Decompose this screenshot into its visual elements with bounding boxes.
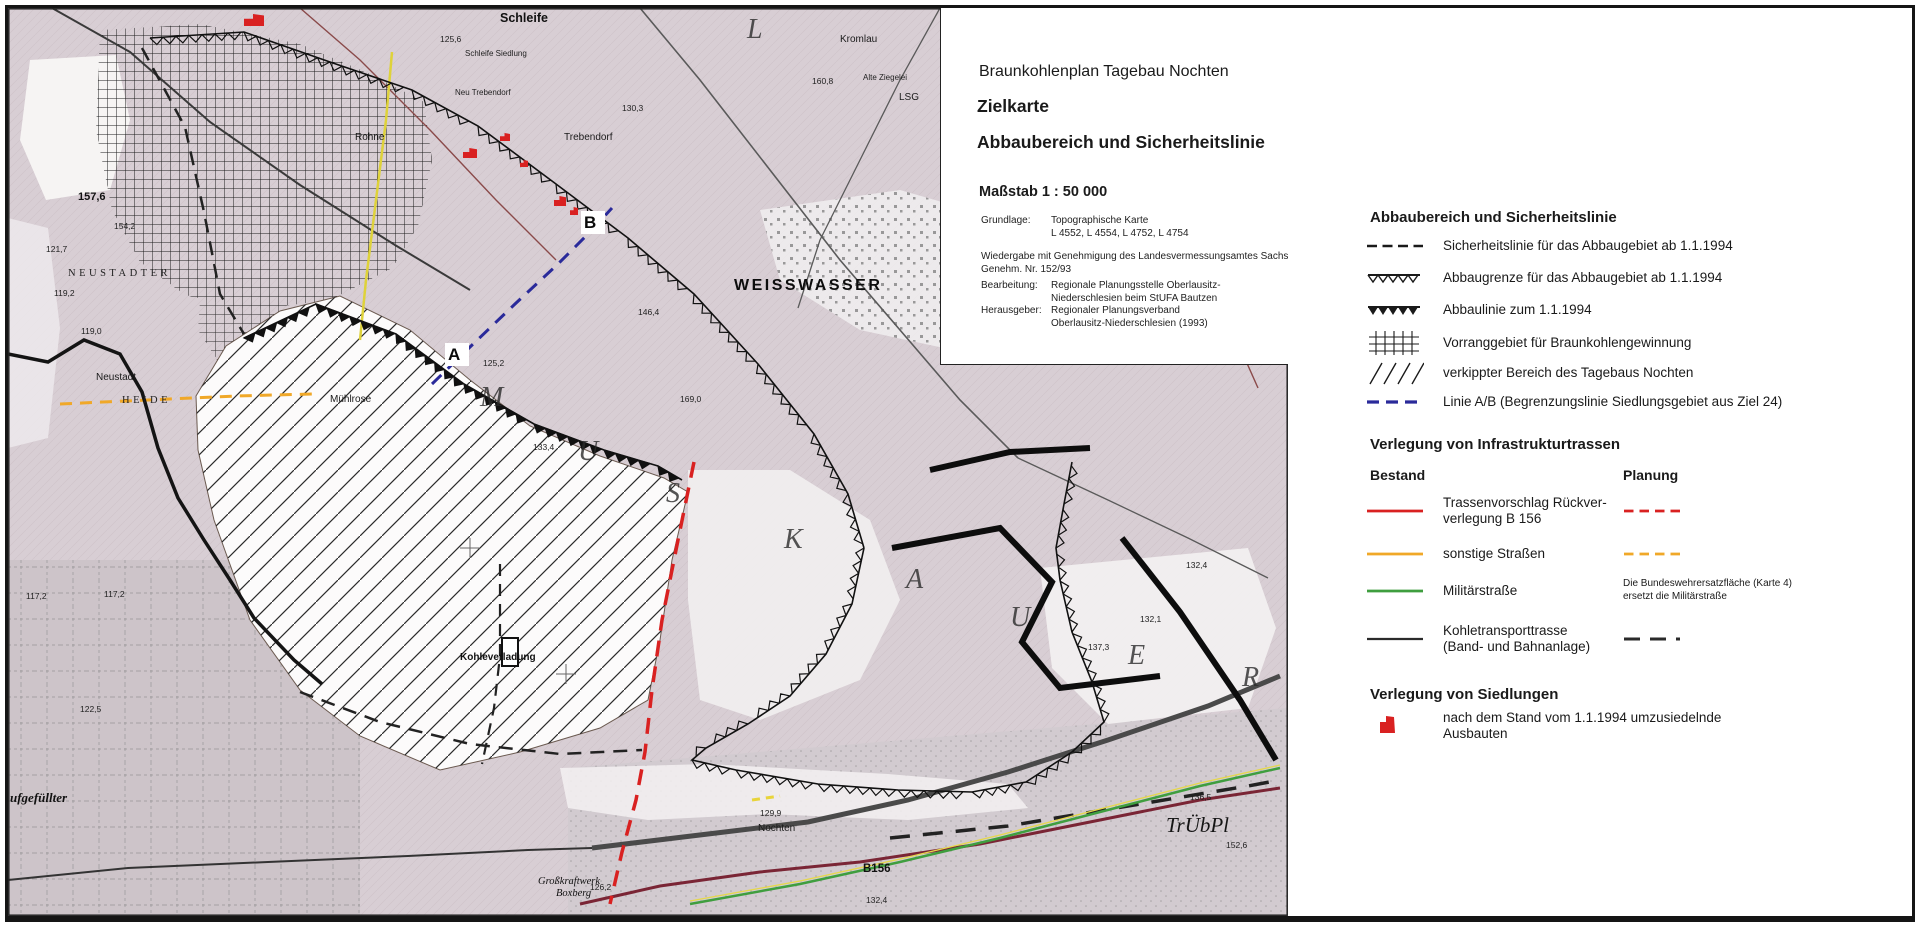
legend-item-b156-verlegung: Trassenvorschlag Rückver- verlegung B 15… [1366,495,1898,527]
diagonal-hatch-symbol [1366,360,1443,386]
map-label: 119,2 [54,288,75,298]
map-label: 117,2 [104,589,125,599]
map-label: 136,5 [1190,792,1212,802]
map-label: 119,0 [81,326,102,336]
red-settlement-symbol [1376,712,1443,736]
map-label: TrÜbPl [1166,813,1229,837]
linie-marker-b: B [584,213,596,232]
forest-letter-k: K [783,524,804,555]
bearbeitung-label: Bearbeitung: [981,280,1045,305]
legend-item-label: Linie A/B (Begrenzungslinie Siedlungsgeb… [1443,394,1782,410]
source-bearbeitung: Bearbeitung:Regionale Planungsstelle Obe… [981,280,1221,305]
source-grundlage: Grundlage:Topographische Karte L 4552, L… [981,215,1189,240]
forest-letter-m: M [479,382,505,413]
legend-item-label: Militärstraße [1443,583,1623,599]
legend-panel: Abbaubereich und Sicherheitslinie Sicher… [1288,8,1907,916]
map-label: 169,0 [680,394,702,404]
herausgeber-label: Herausgeber: [981,305,1045,330]
source-herausgeber: Herausgeber:Regionaler Planungsverband O… [981,305,1208,330]
blue-dashed-line-symbol [1366,396,1443,408]
map-label: 125,6 [440,34,462,44]
grundlage-text: Topographische Karte L 4552, L 4554, L 4… [1051,215,1189,240]
forest-letter-u: U [578,436,600,467]
map-label: 121,7 [46,244,68,254]
map-label: Nochten [758,823,795,834]
map-label: Trebendorf [564,132,613,143]
map-label: 152,6 [1226,840,1248,850]
map-label: 117,2 [26,591,47,601]
permission-text: Wiedergabe mit Genehmigung des Landesver… [981,251,1300,276]
map-label: 137,3 [1088,642,1110,652]
legend-item-label: verkippter Bereich des Tagebaus Nochten [1443,365,1693,381]
legend-item-label: sonstige Straßen [1443,546,1623,562]
forest-letter-u: U [1010,602,1032,633]
legend-item-abbaulinie: Abbaulinie zum 1.1.1994 [1366,302,1592,318]
legend-item-sonstige-strassen: sonstige Straßen [1366,546,1898,562]
forest-letter-r: R [1241,662,1259,693]
legend-item-vorranggebiet: Vorranggebiet für Braunkohlengewinnung [1366,328,1691,358]
linie-marker-a: A [448,345,460,364]
legend-item-umsiedlung: nach dem Stand vom 1.1.1994 umzusiedelnd… [1376,710,1721,742]
map-label: 132,4 [1186,560,1208,570]
open-zigzag-symbol [1366,271,1443,286]
map-label: 160,8 [812,76,834,86]
grid-hatch-symbol [1366,328,1443,358]
legend-heading-abbaubereich: Abbaubereich und Sicherheitslinie [1370,209,1617,226]
map-label: NEUSTADTER [68,268,171,279]
map-label: Schleife [500,11,548,25]
map-label: Neu Trebendorf [455,88,511,97]
legend-item-label: Abbaulinie zum 1.1.1994 [1443,302,1592,318]
red-line-symbol [1366,505,1443,517]
map-label: Alte Ziegelei [863,73,907,82]
map-label: 132,1 [1140,614,1162,624]
column-bestand: Bestand [1370,467,1425,483]
map-label: 154,2 [114,221,136,231]
legend-item-label: nach dem Stand vom 1.1.1994 umzusiedelnd… [1443,710,1721,742]
map-label: 157,6 [78,191,106,203]
forest-letter-s: S [666,478,680,509]
map-label: WEISSWASSER [734,277,882,294]
filled-triangles-symbol [1366,303,1443,318]
green-line-symbol [1366,585,1443,597]
legend-item-label: Vorranggebiet für Braunkohlengewinnung [1443,335,1691,351]
map-label: 125,2 [483,358,505,368]
black-longdash-line-symbol [1623,633,1700,645]
map-label: 122,5 [80,704,102,714]
forest-letter-e: E [1127,640,1145,671]
map-label: Großkraftwerk [538,876,600,887]
map-label: 132,4 [866,895,888,905]
legend-item-militaerstrasse: Militärstraße Die Bundeswehrersatzfläche… [1366,578,1898,603]
legend-item-sicherheitslinie: Sicherheitslinie für das Abbaugebiet ab … [1366,238,1733,254]
legend-item-label: Sicherheitslinie für das Abbaugebiet ab … [1443,238,1733,254]
dashed-line-symbol [1366,240,1443,252]
map-label: Schleife Siedlung [465,49,527,58]
bearbeitung-text: Regionale Planungsstelle Oberlausitz- Ni… [1051,280,1221,305]
column-planung: Planung [1623,467,1678,483]
map-label: HEIDE [122,395,171,406]
map-label: ufgefüllter [10,790,68,805]
forest-letter-l: L [746,14,763,45]
map-label: 129,9 [760,808,782,818]
forest-letter-a: A [904,564,924,595]
map-label: 133,4 [533,442,555,452]
orange-line-symbol [1366,548,1443,560]
map-label: Neustadt [96,372,136,383]
map-label: Kromlau [840,34,877,45]
source-permission: Wiedergabe mit Genehmigung des Landesver… [981,251,1300,276]
black-line-symbol [1366,633,1443,645]
map-label: Kohleverladung [460,652,536,663]
grundlage-label: Grundlage: [981,215,1045,240]
legend-item-linie-ab: Linie A/B (Begrenzungslinie Siedlungsgeb… [1366,394,1782,410]
legend-item-abbaugrenze: Abbaugrenze für das Abbaugebiet ab 1.1.1… [1366,270,1722,286]
map-scale: Maßstab 1 : 50 000 [979,184,1107,200]
red-dashed-line-symbol [1623,505,1700,517]
map-subject-title: Abbaubereich und Sicherheitslinie [977,132,1265,153]
map-label: LSG [899,92,919,103]
map-type-title: Zielkarte [977,96,1049,117]
legend-heading-infrastruktur: Verlegung von Infrastrukturtrassen [1370,436,1620,453]
map-label: 130,3 [622,103,644,113]
legend-item-verkippter-bereich: verkippter Bereich des Tagebaus Nochten [1366,360,1693,386]
map-label: 146,4 [638,307,660,317]
legend-item-label: Trassenvorschlag Rückver- verlegung B 15… [1443,495,1623,527]
planung-note: Die Bundeswehrersatzfläche (Karte 4) ers… [1623,578,1898,603]
legend-heading-siedlungen: Verlegung von Siedlungen [1370,686,1558,703]
plan-name: Braunkohlenplan Tagebau Nochten [979,63,1229,81]
map-label: Mühlrose [330,394,372,405]
map-label: Boxberg [556,888,591,899]
herausgeber-text: Regionaler Planungsverband Oberlausitz-N… [1051,305,1208,330]
map-label: Rohne [355,132,385,143]
legend-item-label: Abbaugrenze für das Abbaugebiet ab 1.1.1… [1443,270,1722,286]
legend-item-kohletransporttrasse: Kohletransporttrasse (Band- und Bahnanla… [1366,623,1898,655]
legend-item-label: Kohletransporttrasse (Band- und Bahnanla… [1443,623,1623,655]
orange-dashed-line-symbol [1623,548,1700,560]
map-label: B156 [863,863,891,875]
